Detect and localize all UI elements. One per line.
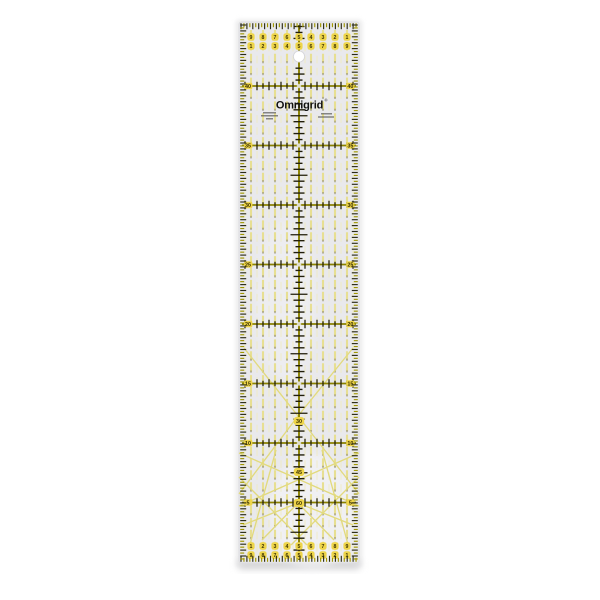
svg-text:3: 3 [322,35,325,41]
svg-text:6: 6 [286,35,289,41]
svg-text:1: 1 [250,44,253,50]
svg-text:7: 7 [322,544,325,550]
svg-text:40: 40 [347,84,353,90]
svg-text:4: 4 [286,544,289,550]
svg-text:60: 60 [296,501,302,507]
svg-text:3: 3 [274,44,277,50]
svg-text:5: 5 [298,44,301,50]
svg-text:®: ® [325,98,328,103]
svg-text:1: 1 [250,544,253,550]
svg-text:8: 8 [262,35,265,41]
svg-text:5: 5 [349,501,352,507]
svg-text:3: 3 [274,544,277,550]
svg-text:6: 6 [310,44,313,50]
svg-text:20: 20 [245,322,251,328]
svg-text:5: 5 [298,544,301,550]
svg-text:2: 2 [334,35,337,41]
svg-text:2: 2 [262,44,265,50]
svg-text:30: 30 [296,419,302,425]
svg-text:7: 7 [274,35,277,41]
svg-text:40: 40 [245,84,251,90]
svg-text:5: 5 [247,501,250,507]
svg-text:9: 9 [346,544,349,550]
svg-text:20: 20 [347,322,353,328]
svg-text:7: 7 [322,44,325,50]
svg-text:25: 25 [347,263,353,269]
svg-text:5: 5 [298,35,301,41]
svg-text:4: 4 [310,35,313,41]
svg-text:9: 9 [346,44,349,50]
svg-text:2: 2 [262,544,265,550]
svg-text:4: 4 [286,44,289,50]
svg-text:Omnigrid: Omnigrid [276,99,323,111]
svg-text:6: 6 [310,544,313,550]
svg-text:45: 45 [296,470,302,476]
svg-text:25: 25 [245,263,251,269]
svg-text:1: 1 [346,35,349,41]
svg-text:8: 8 [334,544,337,550]
svg-text:9: 9 [250,35,253,41]
svg-text:8: 8 [334,44,337,50]
